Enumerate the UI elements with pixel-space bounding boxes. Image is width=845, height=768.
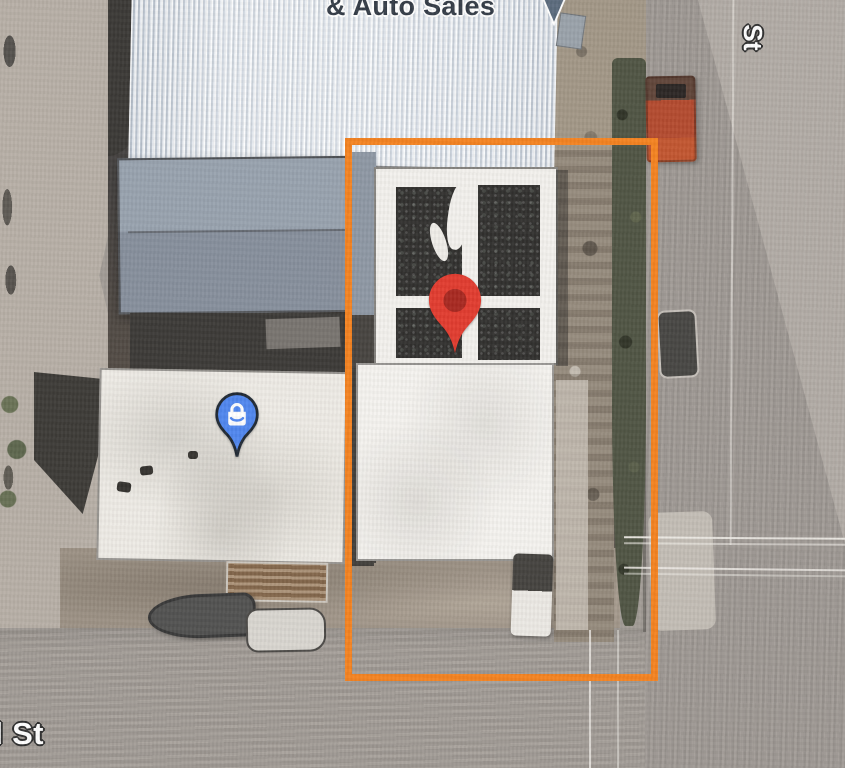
place-label[interactable]: & Auto Sales xyxy=(326,0,495,22)
orange-truck-window xyxy=(656,84,686,98)
roof-vent xyxy=(140,465,154,475)
white-boat-trailer xyxy=(246,607,327,652)
shopping-place-marker[interactable] xyxy=(213,391,261,461)
roof-vent xyxy=(188,451,198,459)
slate-building-lower-sliver xyxy=(265,317,340,350)
slate-roof-building xyxy=(117,156,374,315)
place-pointer-icon xyxy=(540,0,568,28)
place-label-group[interactable] xyxy=(540,0,568,28)
sidewalk-corner-pad xyxy=(648,511,716,631)
selected-location-marker[interactable] xyxy=(426,272,484,355)
parked-dark-car xyxy=(656,309,700,379)
shopping-bag-pin-icon xyxy=(213,391,261,461)
foliage-left-edge xyxy=(0,382,28,532)
street-label-bottom: d St xyxy=(0,716,44,752)
roof-vent xyxy=(116,481,131,493)
red-pin-icon xyxy=(426,272,484,355)
parcel-highlight-rectangle xyxy=(345,138,658,681)
street-label-right: St xyxy=(733,4,771,70)
map-canvas[interactable]: & Auto Sales St d St xyxy=(0,0,845,768)
